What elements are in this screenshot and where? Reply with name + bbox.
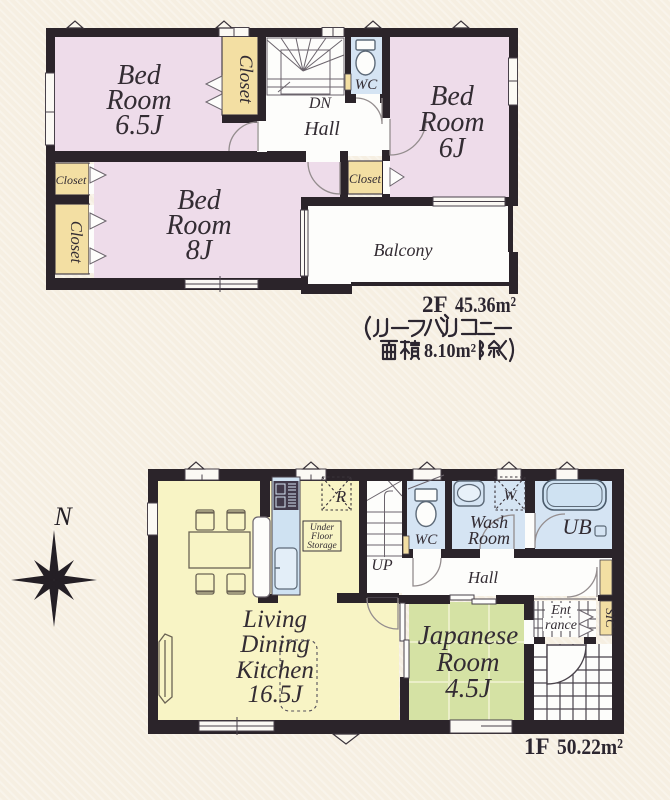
svg-text:SIC: SIC bbox=[603, 608, 618, 628]
svg-text:Japanese: Japanese bbox=[418, 620, 518, 650]
svg-text:Hall: Hall bbox=[303, 118, 340, 140]
svg-text:Living: Living bbox=[242, 606, 307, 633]
svg-text:rance: rance bbox=[545, 618, 577, 633]
svg-text:UP: UP bbox=[371, 557, 393, 574]
svg-text:W: W bbox=[504, 488, 518, 504]
svg-text:Ent: Ent bbox=[550, 603, 572, 618]
svg-text:Closet: Closet bbox=[235, 55, 256, 104]
svg-text:DN: DN bbox=[308, 95, 333, 112]
svg-text:Hall: Hall bbox=[467, 568, 499, 587]
svg-text:1F: 1F bbox=[524, 734, 550, 759]
svg-text:Closet: Closet bbox=[67, 221, 86, 264]
svg-text:50.22m²: 50.22m² bbox=[557, 734, 623, 759]
svg-text:6J: 6J bbox=[439, 133, 467, 164]
svg-text:Dining: Dining bbox=[239, 631, 309, 658]
svg-text:Balcony: Balcony bbox=[374, 240, 433, 260]
svg-text:Storage: Storage bbox=[307, 541, 337, 551]
svg-text:4.5J: 4.5J bbox=[445, 673, 493, 703]
svg-text:WC: WC bbox=[355, 77, 378, 93]
svg-text:R: R bbox=[335, 487, 347, 506]
svg-text:8J: 8J bbox=[186, 235, 214, 266]
svg-text:Closet: Closet bbox=[349, 172, 381, 186]
svg-text:Closet: Closet bbox=[56, 173, 87, 187]
svg-text:16.5J: 16.5J bbox=[248, 681, 305, 708]
svg-text:6.5J: 6.5J bbox=[115, 110, 164, 141]
svg-text:8.10m²: 8.10m² bbox=[424, 340, 476, 362]
svg-text:2F: 2F bbox=[422, 292, 448, 317]
svg-text:N: N bbox=[53, 502, 73, 531]
svg-text:WC: WC bbox=[415, 532, 438, 548]
svg-text:UB: UB bbox=[562, 514, 591, 539]
svg-text:45.36m²: 45.36m² bbox=[455, 292, 516, 317]
svg-text:Room: Room bbox=[467, 528, 510, 548]
svg-text:Kitchen: Kitchen bbox=[235, 657, 314, 684]
